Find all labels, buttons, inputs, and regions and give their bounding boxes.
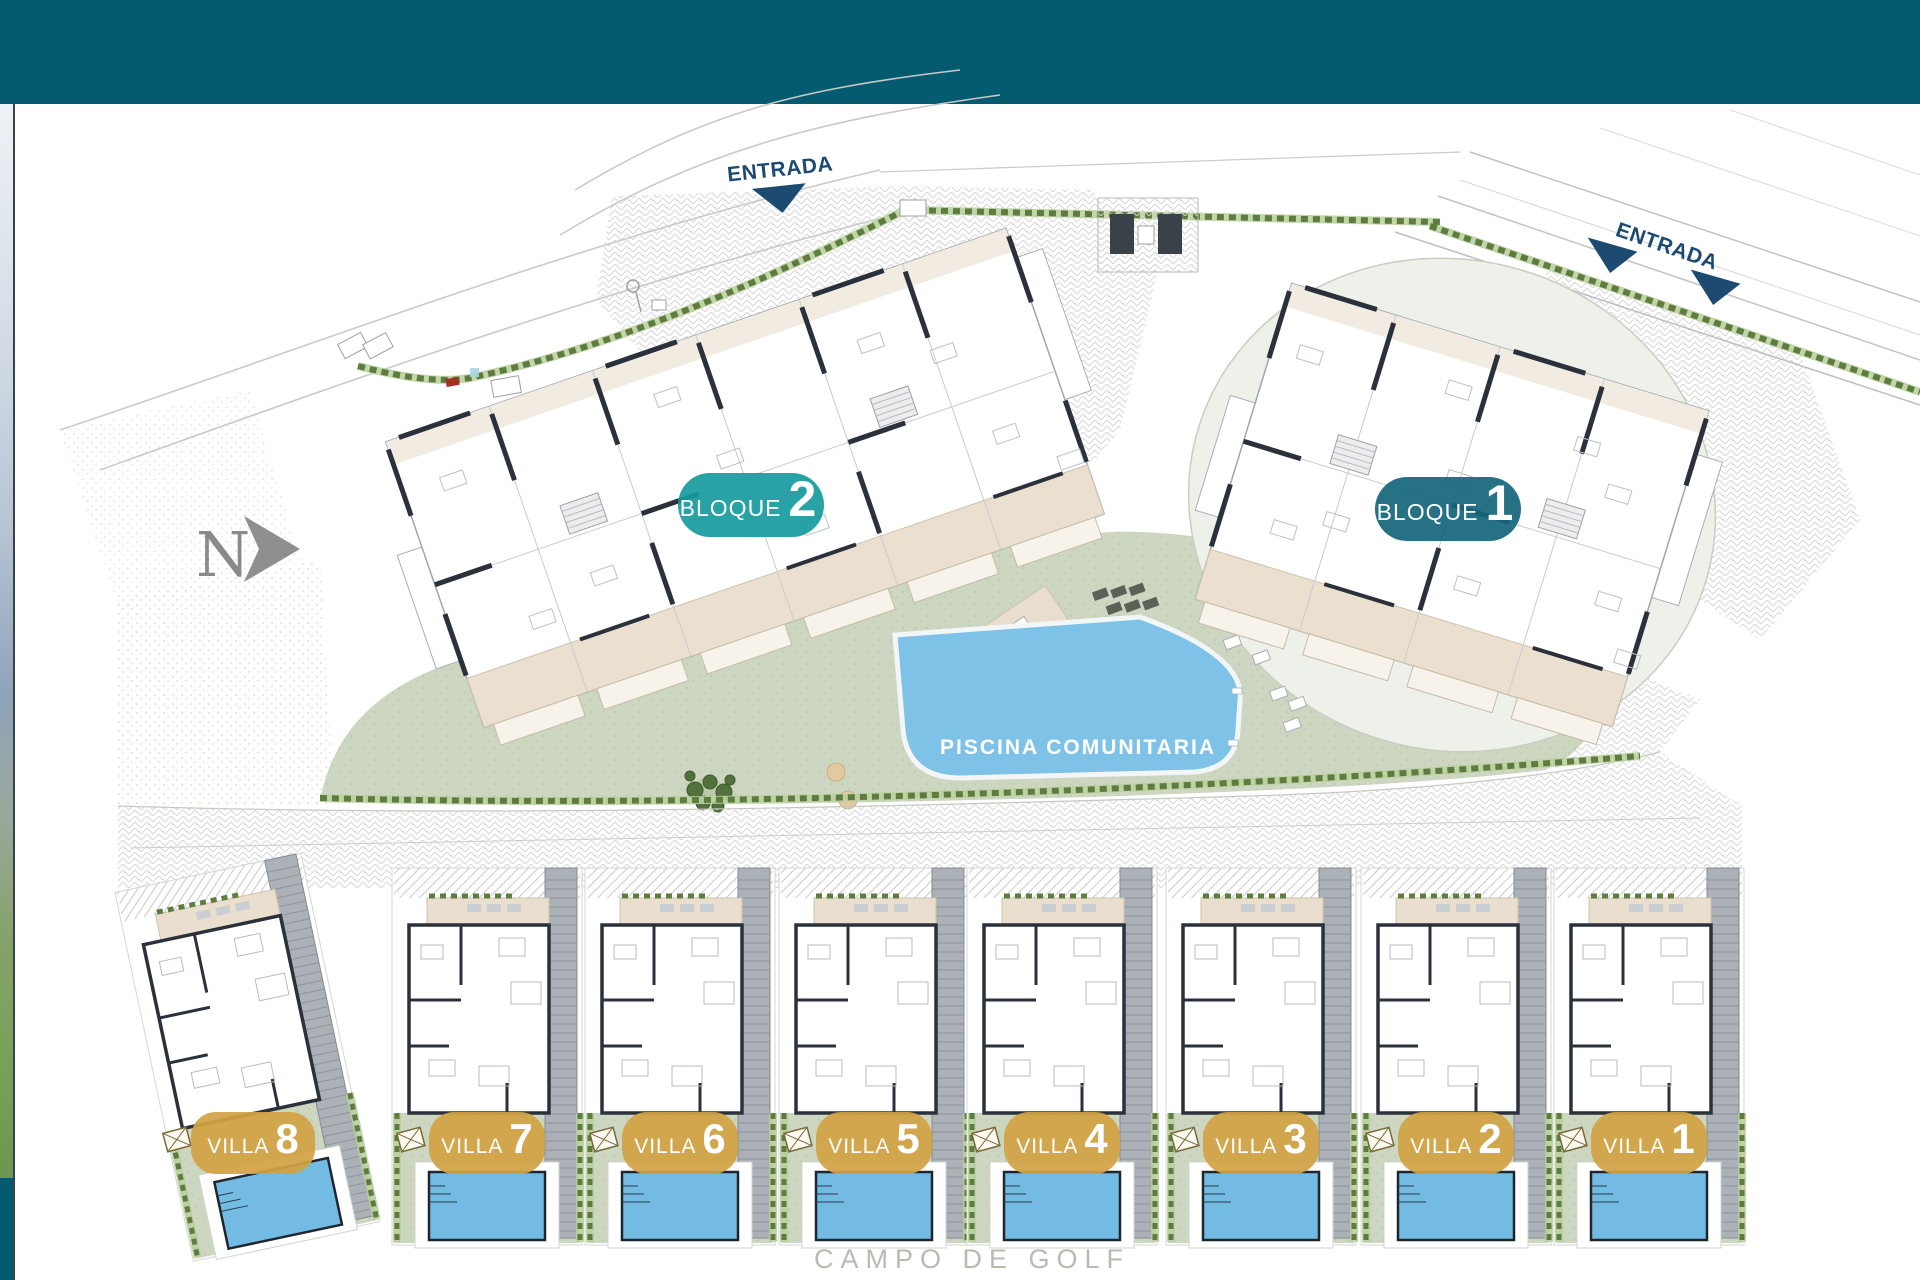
villa-plot-4: VILLA4 — [967, 868, 1157, 1248]
bloque-2-badge[interactable]: BLOQUE2 — [678, 471, 824, 537]
entrance-2-arrow-icon-b — [1687, 269, 1741, 307]
villa-badge-8[interactable]: VILLA8 — [191, 1112, 315, 1174]
villa-plot-3: VILLA3 — [1166, 868, 1356, 1248]
communal-pool: PISCINA COMUNITARIA — [895, 617, 1242, 778]
entrance-2-label: ENTRADA — [1613, 218, 1721, 274]
villa-plot-5: VILLA5 — [779, 868, 969, 1248]
villa-badge-6[interactable]: VILLA6 — [622, 1112, 738, 1174]
villa-badge-3[interactable]: VILLA3 — [1203, 1112, 1319, 1174]
villas-row: VILLA8VILLA7VILLA6VILLA5VILLA4VILLA3VILL… — [115, 853, 1744, 1264]
ground-texture — [60, 390, 335, 806]
villa-badge-4[interactable]: VILLA4 — [1004, 1112, 1120, 1174]
pergola-area — [1098, 198, 1198, 272]
villa-plot-1: VILLA1 — [1554, 868, 1744, 1248]
golf-label: CAMPO DE GOLF — [814, 1244, 1130, 1274]
pool-label: PISCINA COMUNITARIA — [940, 736, 1216, 759]
villa-plot-7: VILLA7 — [392, 868, 582, 1248]
villa-badge-1[interactable]: VILLA1 — [1591, 1112, 1707, 1174]
villa-plot-6: VILLA6 — [585, 868, 775, 1248]
villa-plot-8: VILLA8 — [115, 853, 380, 1264]
villa-badge-7[interactable]: VILLA7 — [429, 1112, 545, 1174]
villa-plot-2: VILLA2 — [1361, 868, 1551, 1248]
villa-badge-2[interactable]: VILLA2 — [1398, 1112, 1514, 1174]
entrance-1-label: ENTRADA — [726, 153, 834, 187]
villa-badge-5[interactable]: VILLA5 — [816, 1112, 932, 1174]
bloque-1-badge[interactable]: BLOQUE1 — [1375, 475, 1521, 541]
north-label: N — [196, 518, 250, 591]
site-plan: PISCINA COMUNITARIA — [0, 0, 1920, 1280]
